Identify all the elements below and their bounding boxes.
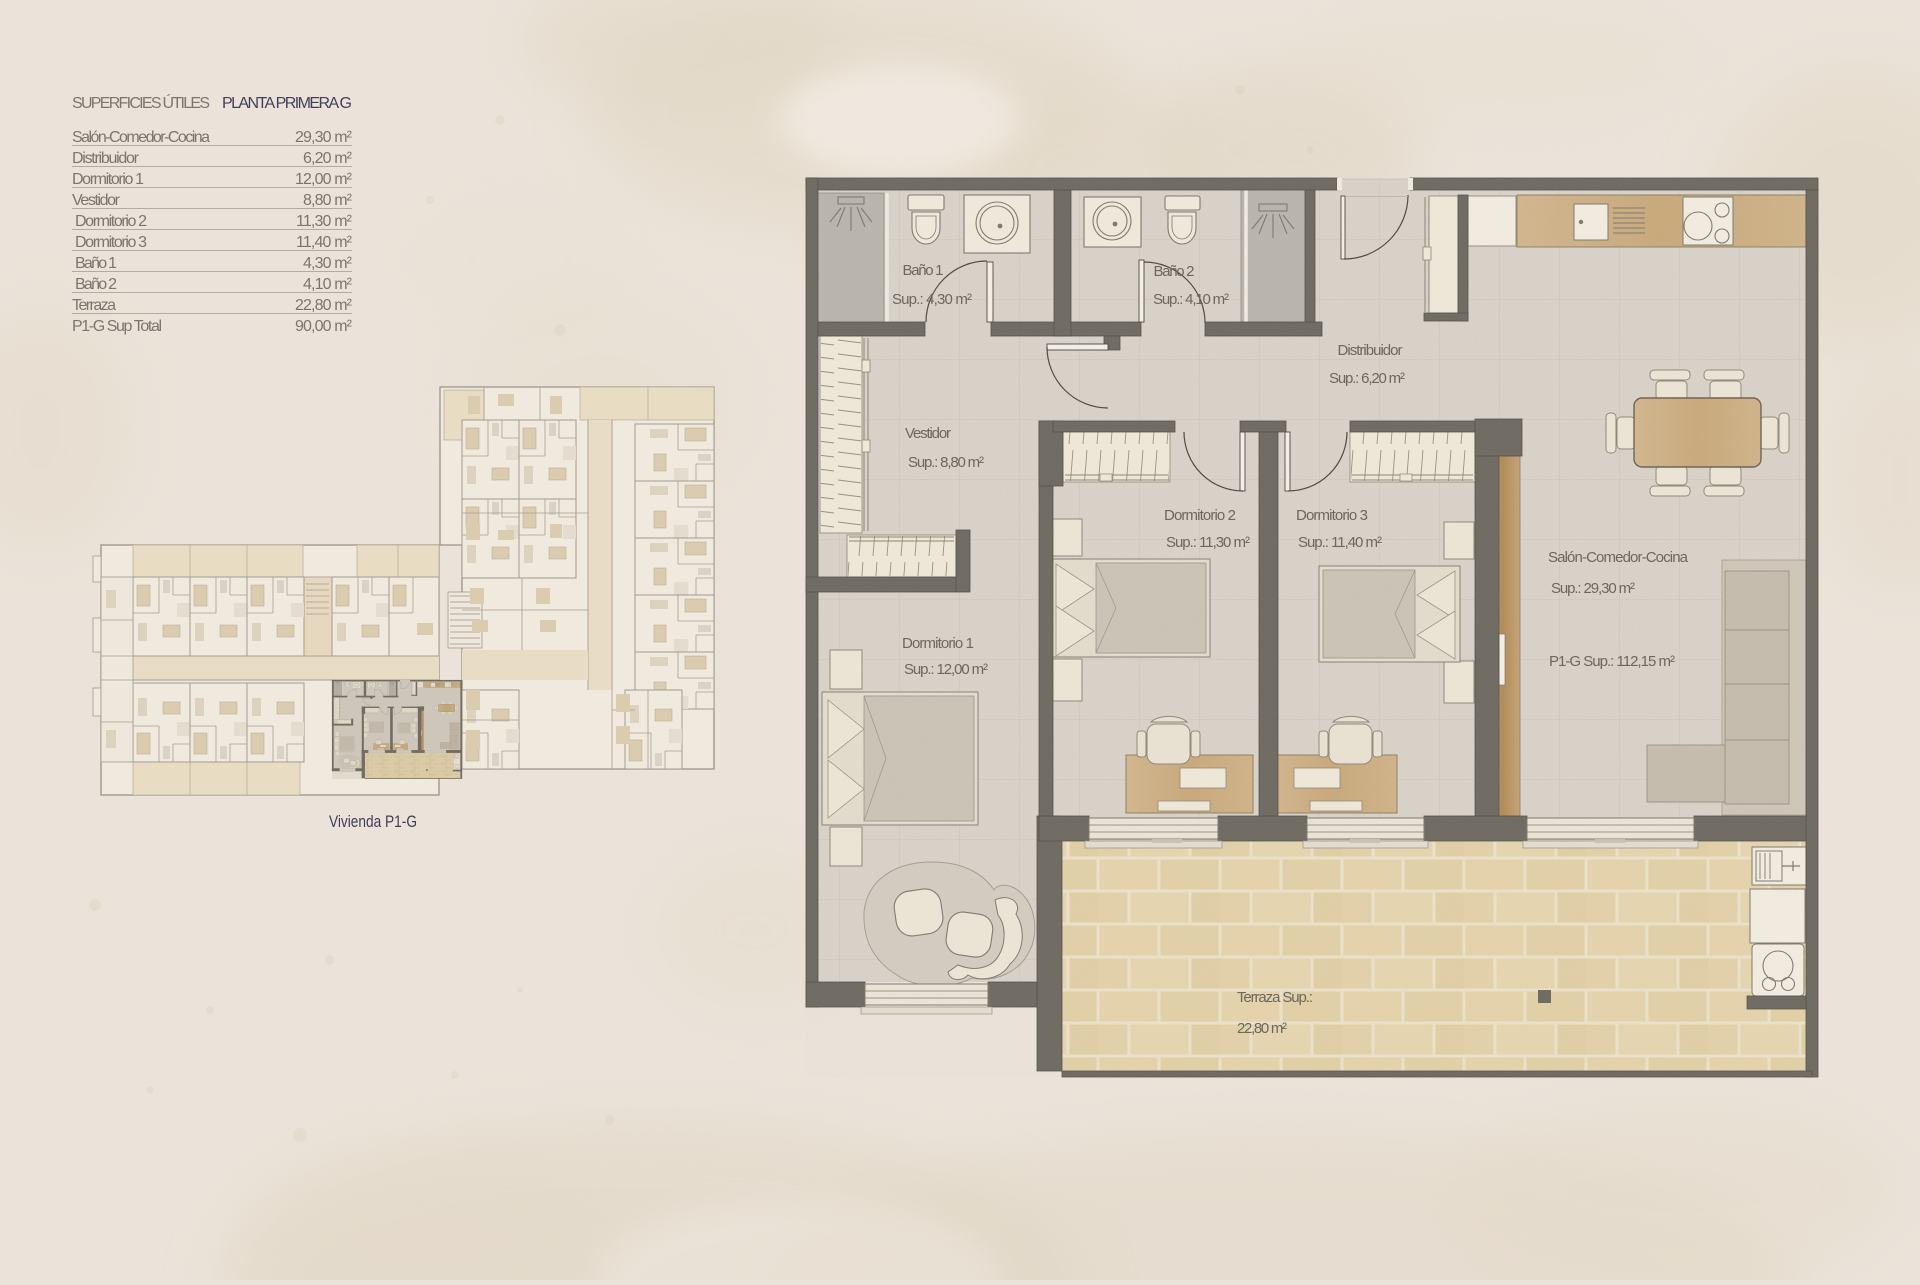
svg-text:SUPERFICIES ÚTILES: SUPERFICIES ÚTILES xyxy=(72,93,210,112)
svg-text:8,80 m²: 8,80 m² xyxy=(303,192,353,209)
svg-text:11,40 m²: 11,40 m² xyxy=(296,234,353,251)
svg-text:4,10 m²: 4,10 m² xyxy=(303,276,353,293)
svg-text:Vivienda P1-G: Vivienda P1-G xyxy=(329,812,417,831)
svg-text:11,30 m²: 11,30 m² xyxy=(296,213,353,230)
svg-text:Dormitorio 2: Dormitorio 2 xyxy=(75,213,147,230)
svg-text:Terraza: Terraza xyxy=(72,297,116,314)
svg-text:90,00 m²: 90,00 m² xyxy=(295,318,353,335)
svg-text:Salón-Comedor-Cocina: Salón-Comedor-Cocina xyxy=(72,129,210,146)
svg-text:29,30 m²: 29,30 m² xyxy=(295,129,353,146)
svg-text:12,00 m²: 12,00 m² xyxy=(295,171,353,188)
svg-text:22,80 m²: 22,80 m² xyxy=(295,297,353,314)
svg-text:Distribuidor: Distribuidor xyxy=(72,150,140,167)
svg-text:Vestidor: Vestidor xyxy=(72,192,121,209)
svg-text:6,20 m²: 6,20 m² xyxy=(303,150,353,167)
svg-text:PLANTA PRIMERA G: PLANTA PRIMERA G xyxy=(222,95,352,112)
svg-text:4,30 m²: 4,30 m² xyxy=(303,255,353,272)
svg-text:P1-G Sup Total: P1-G Sup Total xyxy=(72,318,162,335)
svg-text:Dormitorio 1: Dormitorio 1 xyxy=(72,171,144,188)
svg-text:Dormitorio 3: Dormitorio 3 xyxy=(75,234,147,251)
svg-text:Baño 1: Baño 1 xyxy=(75,255,117,272)
svg-text:Baño 2: Baño 2 xyxy=(75,276,117,293)
